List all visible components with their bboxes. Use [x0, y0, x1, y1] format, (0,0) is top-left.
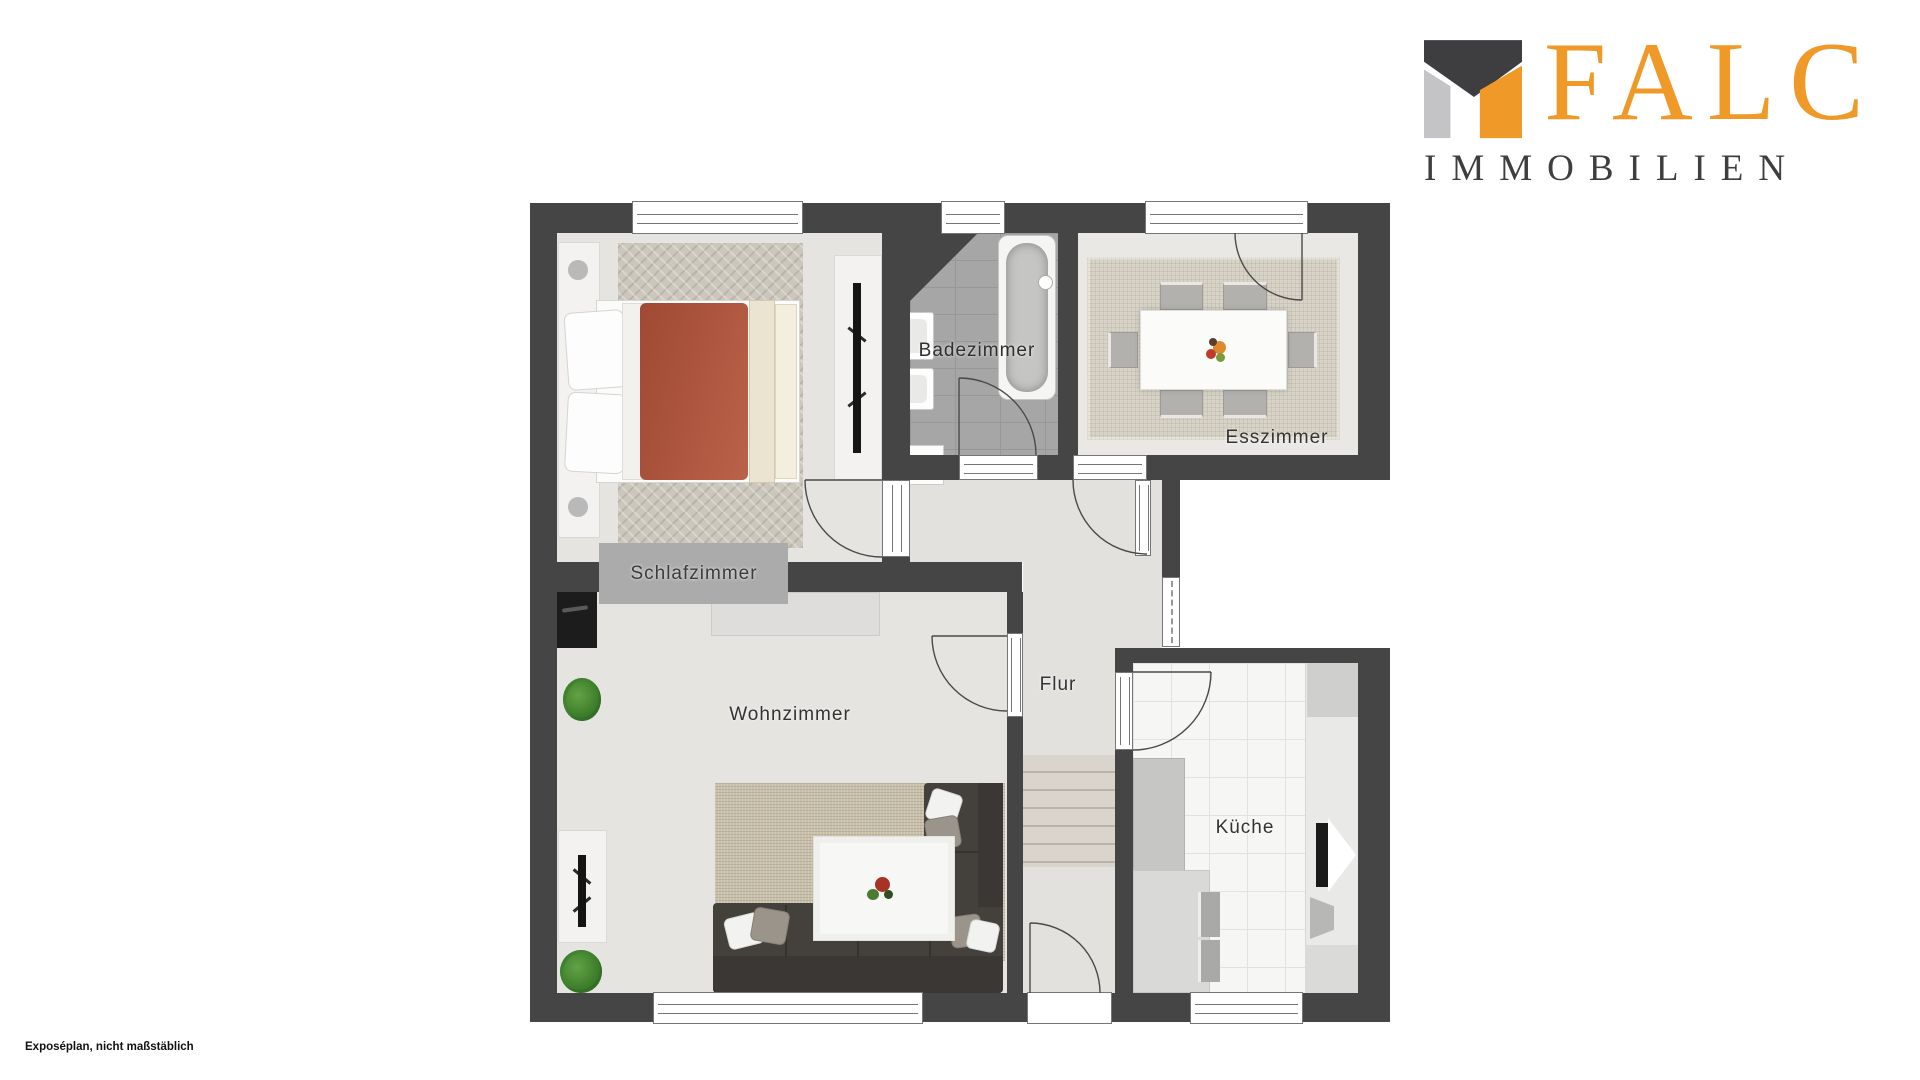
footnote-text: Exposéplan, nicht maßstäblich [25, 1041, 194, 1053]
oven [1316, 823, 1328, 887]
plant [560, 950, 602, 993]
nightstand-lamp [568, 497, 588, 517]
entrance-door [1027, 992, 1112, 1024]
dining-chair [1223, 282, 1267, 310]
room-label-kueche: Küche [1216, 817, 1275, 839]
room-label-schlafzimmer: Schlafzimmer [630, 563, 757, 585]
staircase [1023, 755, 1115, 867]
bathroom-door [959, 455, 1038, 480]
livingroom-tv [578, 855, 586, 927]
dining-chair [1223, 390, 1267, 418]
diningroom-door-leaf [1135, 480, 1151, 556]
room-label-esszimmer: Esszimmer [1226, 427, 1329, 449]
kitchen-counter-block [1305, 945, 1358, 993]
plant [563, 678, 601, 721]
hallway-opening [1162, 577, 1180, 647]
room-label-badezimmer: Badezimmer [919, 340, 1036, 362]
room-label-wohnzimmer: Wohnzimmer [729, 704, 851, 726]
wall [1162, 480, 1180, 577]
kitchen-cupboard [1133, 758, 1185, 880]
kitchen-chair [1198, 940, 1220, 982]
kitchen-window [1190, 992, 1303, 1024]
bathtub-faucet [1038, 275, 1053, 290]
dining-chair [1160, 390, 1203, 418]
wall [1115, 648, 1358, 663]
kitchen-door [1115, 672, 1133, 750]
bed-pillow [563, 309, 628, 391]
diningroom-door-opening [1073, 455, 1147, 480]
bathroom-window [941, 201, 1005, 234]
table-flower [867, 889, 879, 900]
room-label-flur: Flur [1040, 674, 1077, 696]
kitchen-counter-block [1307, 663, 1358, 717]
floorplan-page: FALC IMMOBILIEN Exposéplan, nicht maßstä… [0, 0, 1920, 1080]
falc-logo-mark-icon [1424, 40, 1522, 152]
logo-brand-text: FALC [1544, 12, 1900, 152]
livingroom-door [1007, 633, 1023, 717]
diningroom-window-door [1145, 201, 1308, 234]
bathtub [998, 235, 1056, 400]
dining-chair [1288, 332, 1317, 368]
wall [530, 203, 557, 1022]
bed-footboard [749, 300, 775, 483]
sofa-backrest [978, 783, 1003, 907]
sofa-cushion [749, 906, 790, 946]
dining-chair [1160, 282, 1203, 310]
wall [882, 233, 910, 482]
wall [1358, 648, 1390, 1022]
table-flower [884, 890, 893, 899]
wall [1058, 233, 1078, 455]
wall [1358, 203, 1390, 480]
logo-subtitle-text: IMMOBILIEN [1424, 148, 1894, 190]
hallway-floor-upper [910, 480, 1162, 562]
fruit-bowl [1209, 338, 1217, 346]
hallway-floor-mid [1115, 562, 1162, 648]
fruit-bowl [1206, 349, 1216, 359]
wall [1007, 717, 1023, 993]
kitchen-chair [1198, 892, 1220, 937]
bed-pillow [564, 391, 628, 474]
fruit-bowl [1216, 353, 1225, 362]
bed-bench [775, 304, 797, 479]
floor-plan: Schlafzimmer Badezimmer Esszimmer Wohnzi… [530, 203, 1390, 1022]
nightstand-lamp [568, 260, 588, 280]
wall [1007, 592, 1023, 633]
bedroom-window [632, 201, 803, 234]
bedroom-tv [853, 283, 861, 453]
dining-chair [1108, 332, 1138, 368]
bedroom-door [882, 480, 910, 557]
sofa-backrest [713, 956, 1003, 993]
bed-duvet [640, 303, 748, 480]
sofa-cushion [965, 918, 1001, 954]
livingroom-window [653, 992, 923, 1024]
falc-logo: FALC IMMOBILIEN [1420, 30, 1900, 190]
